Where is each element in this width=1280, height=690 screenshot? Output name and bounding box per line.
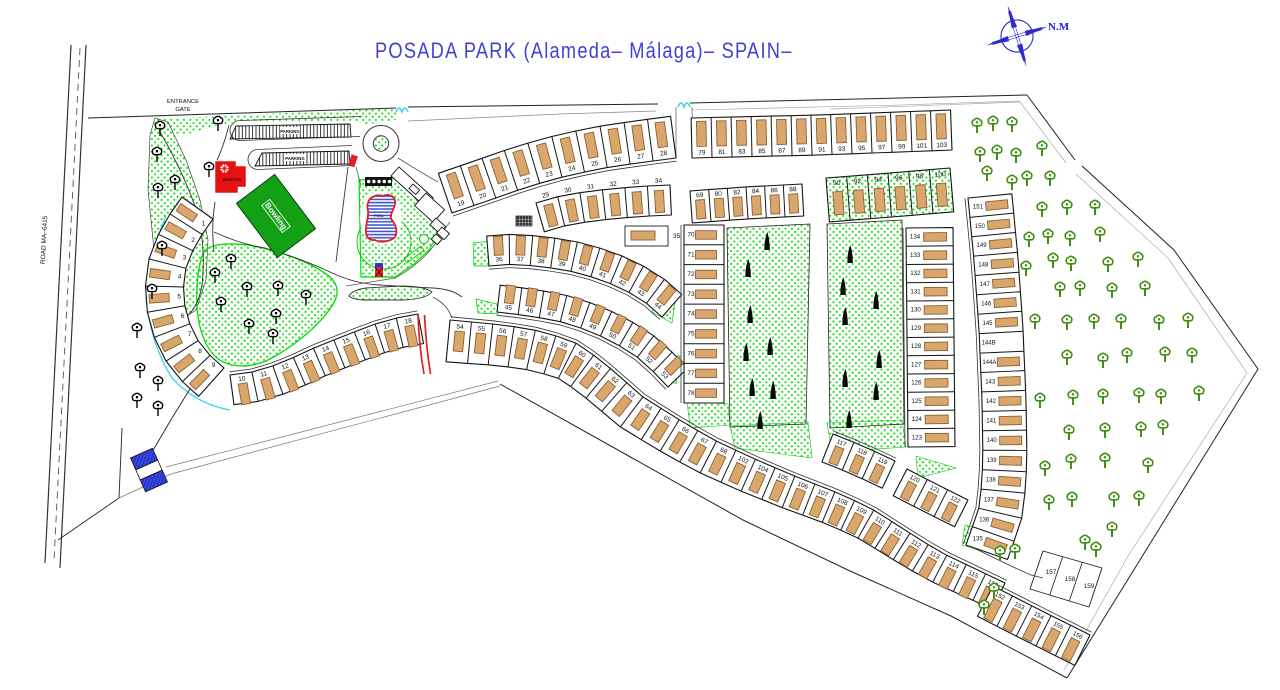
svg-text:98: 98 <box>915 173 923 181</box>
svg-text:74: 74 <box>687 311 695 318</box>
svg-text:101: 101 <box>916 143 927 150</box>
svg-text:128: 128 <box>911 343 922 350</box>
svg-text:7: 7 <box>188 331 192 338</box>
svg-text:97: 97 <box>878 144 886 151</box>
svg-text:71: 71 <box>687 251 695 258</box>
svg-text:87: 87 <box>778 148 786 155</box>
svg-text:140: 140 <box>987 438 998 444</box>
svg-text:RECEPTION: RECEPTION <box>223 178 242 182</box>
svg-text:123: 123 <box>912 434 923 441</box>
svg-text:26: 26 <box>614 156 623 164</box>
svg-text:158: 158 <box>1065 576 1076 583</box>
svg-text:143: 143 <box>985 379 996 385</box>
svg-text:3: 3 <box>183 255 187 262</box>
svg-text:141: 141 <box>986 418 997 424</box>
svg-text:34: 34 <box>655 178 663 185</box>
svg-text:88: 88 <box>789 186 797 193</box>
svg-text:91: 91 <box>818 146 826 153</box>
svg-text:6: 6 <box>181 313 185 320</box>
svg-text:38: 38 <box>537 258 545 266</box>
svg-text:139: 139 <box>987 458 998 464</box>
svg-text:159: 159 <box>1084 583 1095 590</box>
svg-text:37: 37 <box>516 256 524 263</box>
svg-text:GATE: GATE <box>175 107 190 113</box>
svg-text:78: 78 <box>687 390 695 397</box>
svg-text:28: 28 <box>660 150 668 158</box>
svg-text:145: 145 <box>982 321 993 327</box>
svg-text:36: 36 <box>495 256 503 264</box>
svg-text:86: 86 <box>770 187 778 194</box>
svg-text:127: 127 <box>911 361 922 368</box>
svg-text:95: 95 <box>858 145 866 152</box>
svg-text:56: 56 <box>499 328 507 336</box>
svg-text:80: 80 <box>714 190 722 198</box>
svg-text:75: 75 <box>687 331 695 338</box>
svg-text:79: 79 <box>698 149 706 156</box>
svg-text:84: 84 <box>752 188 760 195</box>
svg-text:132: 132 <box>910 270 921 277</box>
svg-text:96: 96 <box>895 175 903 183</box>
svg-text:94: 94 <box>874 176 882 184</box>
svg-text:70: 70 <box>687 232 695 239</box>
svg-text:5: 5 <box>177 294 181 301</box>
svg-text:PARKING: PARKING <box>285 156 305 161</box>
svg-text:76: 76 <box>687 350 695 357</box>
svg-text:9: 9 <box>212 362 216 369</box>
svg-text:138: 138 <box>986 478 997 484</box>
svg-text:4: 4 <box>178 274 182 281</box>
svg-text:137: 137 <box>984 498 995 504</box>
svg-text:35: 35 <box>673 233 681 240</box>
svg-text:N.M: N.M <box>1048 21 1070 33</box>
svg-text:1: 1 <box>202 221 206 228</box>
svg-text:45: 45 <box>504 304 512 312</box>
svg-text:125: 125 <box>911 398 922 405</box>
svg-text:103: 103 <box>936 142 947 149</box>
svg-text:144B: 144B <box>982 340 996 346</box>
svg-text:148: 148 <box>978 263 989 269</box>
svg-text:POSADA PARK (Alameda– Málag: POSADA PARK (Alameda– Málaga)– SPAIN– <box>375 40 793 64</box>
svg-text:55: 55 <box>478 325 486 333</box>
svg-text:8: 8 <box>198 348 202 355</box>
svg-text:134: 134 <box>910 234 921 241</box>
svg-text:10: 10 <box>238 375 246 383</box>
svg-text:135: 135 <box>973 536 984 542</box>
svg-text:149: 149 <box>977 243 988 249</box>
svg-text:124: 124 <box>912 416 923 423</box>
svg-text:77: 77 <box>687 370 695 377</box>
svg-text:142: 142 <box>986 399 997 405</box>
svg-text:73: 73 <box>687 291 695 298</box>
svg-text:147: 147 <box>980 282 991 288</box>
svg-text:72: 72 <box>687 271 695 278</box>
svg-text:83: 83 <box>738 148 746 155</box>
svg-text:130: 130 <box>911 307 922 314</box>
svg-text:31: 31 <box>587 183 595 191</box>
svg-text:92: 92 <box>853 178 861 186</box>
svg-text:144A: 144A <box>982 360 996 366</box>
svg-text:136: 136 <box>979 518 990 524</box>
svg-text:27: 27 <box>637 153 646 161</box>
svg-text:2: 2 <box>191 237 195 244</box>
svg-text:129: 129 <box>911 325 922 332</box>
svg-text:100: 100 <box>934 171 946 179</box>
svg-text:ENTRANCE: ENTRANCE <box>167 99 199 105</box>
svg-text:PARKING: PARKING <box>280 129 300 134</box>
svg-text:93: 93 <box>838 146 846 153</box>
svg-text:150: 150 <box>975 224 986 230</box>
svg-text:99: 99 <box>898 143 906 150</box>
svg-text:82: 82 <box>733 189 741 197</box>
svg-text:69: 69 <box>696 192 704 200</box>
svg-text:89: 89 <box>798 147 806 154</box>
svg-text:157: 157 <box>1046 569 1057 576</box>
svg-text:85: 85 <box>758 148 766 155</box>
svg-text:46: 46 <box>525 307 534 315</box>
svg-text:POOL: POOL <box>374 214 384 218</box>
svg-text:32: 32 <box>609 181 617 189</box>
svg-text:151: 151 <box>973 204 984 210</box>
svg-text:90: 90 <box>833 180 841 188</box>
svg-text:54: 54 <box>456 323 464 331</box>
svg-text:131: 131 <box>910 288 921 295</box>
svg-text:133: 133 <box>910 252 921 259</box>
svg-text:146: 146 <box>981 301 992 307</box>
svg-text:81: 81 <box>718 149 726 156</box>
svg-text:33: 33 <box>632 179 640 187</box>
svg-text:126: 126 <box>911 380 922 387</box>
